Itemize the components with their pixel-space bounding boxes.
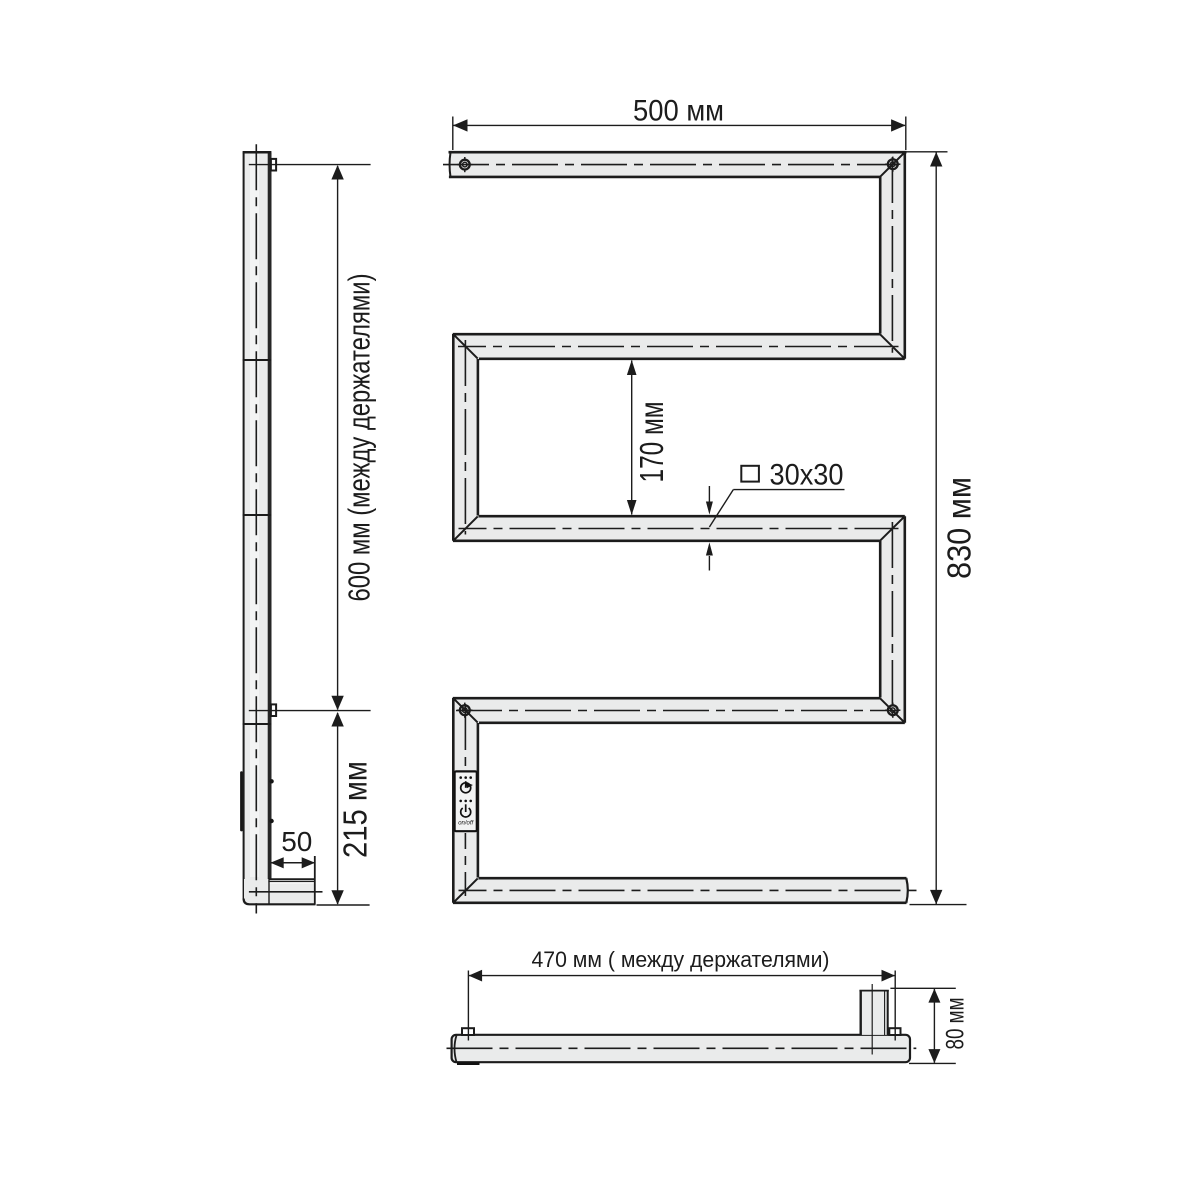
svg-text:30х30: 30х30 bbox=[770, 459, 844, 492]
svg-text:470 мм ( между держателями): 470 мм ( между держателями) bbox=[532, 947, 830, 972]
svg-text:215 мм: 215 мм bbox=[337, 761, 374, 858]
svg-text:500 мм: 500 мм bbox=[633, 95, 724, 128]
svg-text:on/off: on/off bbox=[458, 821, 474, 827]
svg-text:600 мм (между держателями): 600 мм (между держателями) bbox=[342, 274, 377, 602]
svg-text:80 мм: 80 мм bbox=[942, 998, 970, 1050]
svg-text:830 мм: 830 мм bbox=[941, 477, 978, 579]
svg-text:170 мм: 170 мм bbox=[633, 402, 670, 483]
svg-text:50: 50 bbox=[281, 826, 312, 857]
